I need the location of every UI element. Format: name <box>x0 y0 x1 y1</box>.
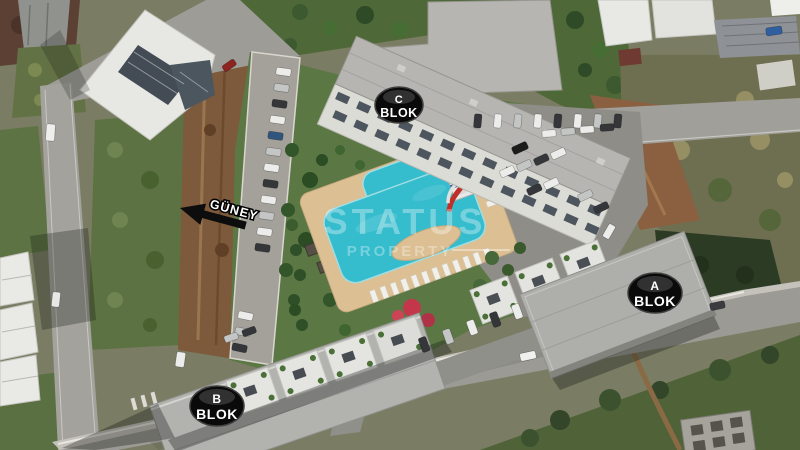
marker-b-word: BLOK <box>196 406 238 422</box>
marker-b-letter: B <box>212 392 221 406</box>
marker-a-letter: A <box>650 279 659 293</box>
marker-c-letter: C <box>395 94 403 106</box>
aerial-photo: STATUS PROPERTY GÜNEY C BLOK A BLOK B BL… <box>0 0 800 450</box>
red-roof-hut <box>618 48 642 66</box>
green-field <box>88 112 185 350</box>
watermark-line1: STATUS <box>324 201 487 242</box>
watermark-rule <box>452 249 510 251</box>
marker-c-word: BLOK <box>380 106 417 120</box>
rubble <box>756 60 795 91</box>
watermark-line2: PROPERTY <box>347 243 454 260</box>
marker-a-word: BLOK <box>634 293 676 309</box>
block-marker-c: C BLOK <box>375 87 423 123</box>
block-marker-a: A BLOK <box>628 273 682 313</box>
site-plan-scene: STATUS PROPERTY GÜNEY C BLOK A BLOK B BL… <box>0 0 800 450</box>
block-marker-b: B BLOK <box>190 386 244 426</box>
